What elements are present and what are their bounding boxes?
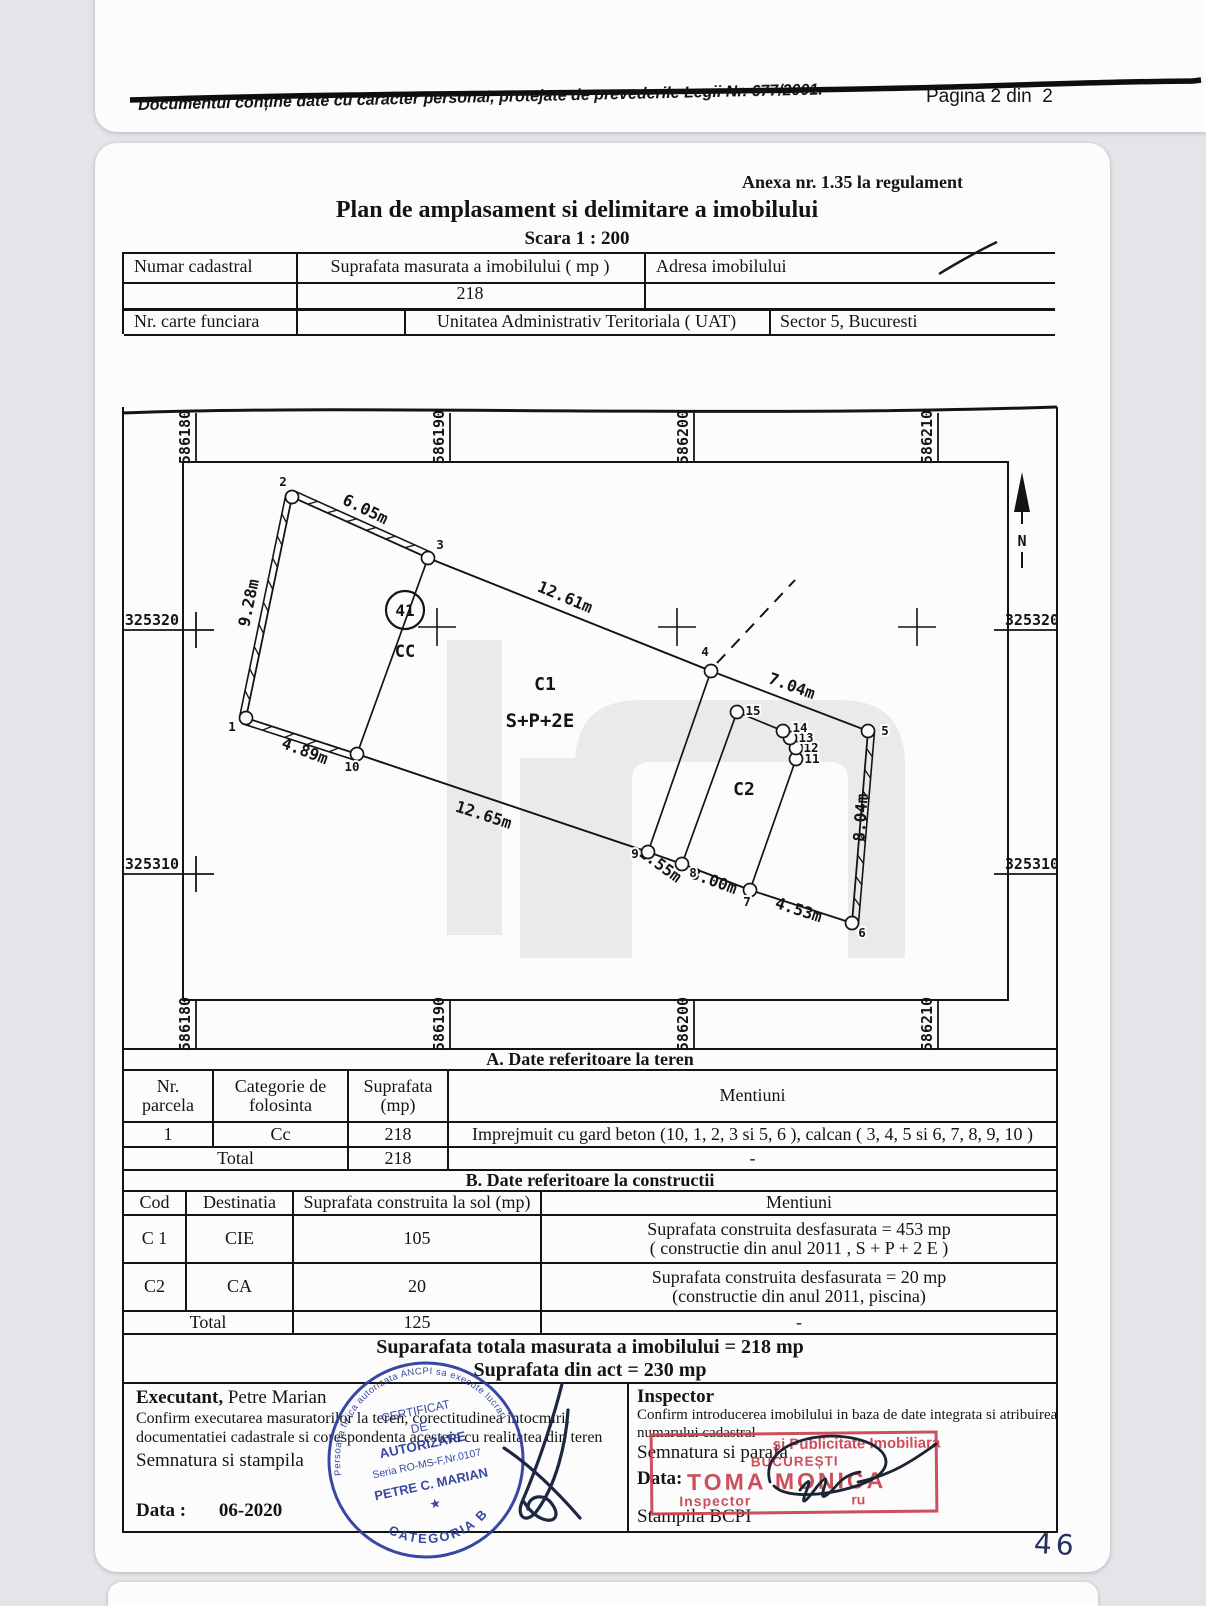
svg-text:7: 7 bbox=[743, 894, 751, 909]
svg-text:586190: 586190 bbox=[430, 410, 448, 464]
watermark bbox=[520, 758, 575, 958]
executant-date-label: Data : bbox=[136, 1500, 186, 1521]
north-arrow-icon bbox=[1014, 472, 1030, 512]
svg-text:41: 41 bbox=[395, 601, 414, 620]
svg-text:N: N bbox=[1017, 532, 1026, 550]
scanned-document-viewer: Documentul conține date cu caracter pers… bbox=[0, 0, 1206, 1590]
c2-code: C2 bbox=[124, 1264, 187, 1312]
svg-text:325310: 325310 bbox=[1005, 855, 1059, 873]
table-construction-data: B. Date referitoare la constructii Cod D… bbox=[122, 1171, 1058, 1335]
col-mentions: Mentiuni bbox=[449, 1071, 1056, 1123]
svg-text:C2: C2 bbox=[733, 779, 755, 800]
total-label: Total bbox=[124, 1148, 349, 1171]
svg-text:5: 5 bbox=[881, 723, 889, 738]
svg-text:9: 9 bbox=[631, 846, 639, 861]
col-footprint: Suprafata construita la sol (mp) bbox=[294, 1192, 542, 1216]
c1-mentions: Suprafata construita desfasurata = 453 m… bbox=[542, 1216, 1056, 1264]
parcel-area: 218 bbox=[349, 1123, 449, 1148]
c2-mentions-line2: (constructie din anul 2011, piscina) bbox=[672, 1287, 926, 1306]
b-total-footprint: 125 bbox=[294, 1312, 542, 1335]
survey-point-1 bbox=[240, 712, 253, 725]
svg-text:325310: 325310 bbox=[125, 855, 179, 873]
survey-point-4 bbox=[705, 665, 718, 678]
col-code: Cod bbox=[124, 1192, 187, 1216]
total-measured-area: Suparafata totala masurata a imobilului … bbox=[124, 1336, 1056, 1359]
survey-point-15 bbox=[731, 706, 744, 719]
svg-text:3: 3 bbox=[436, 537, 444, 552]
svg-text:4.89m: 4.89m bbox=[279, 733, 331, 768]
executant-date: Data : 06-2020 bbox=[136, 1500, 282, 1522]
svg-text:1: 1 bbox=[228, 719, 236, 734]
c1-code: C 1 bbox=[124, 1216, 187, 1264]
svg-text:586180: 586180 bbox=[176, 997, 194, 1051]
col-destination: Destinatia bbox=[187, 1192, 294, 1216]
parcel-mentions: Imprejmuit cu gard beton (10, 1, 2, 3 si… bbox=[449, 1123, 1056, 1148]
svg-text:4.53m: 4.53m bbox=[773, 893, 825, 926]
svg-text:15: 15 bbox=[745, 703, 760, 718]
executant-label: Executant, bbox=[136, 1387, 223, 1408]
col-land-use: Categorie de folosinta bbox=[214, 1071, 349, 1123]
svg-text:6: 6 bbox=[858, 925, 866, 940]
c1-mentions-line2: ( constructie din anul 2011 , S + P + 2 … bbox=[650, 1239, 948, 1258]
total-area: 218 bbox=[349, 1148, 449, 1171]
col-parcel-number: Nr. parcela bbox=[124, 1071, 214, 1123]
c1-footprint: 105 bbox=[294, 1216, 542, 1264]
stamp-line-de: DE bbox=[410, 1419, 429, 1436]
survey-point-5 bbox=[862, 725, 875, 738]
col-area: Suprafata (mp) bbox=[349, 1071, 449, 1123]
survey-point-8 bbox=[676, 858, 689, 871]
svg-text:9.28m: 9.28m bbox=[234, 577, 263, 628]
c2-destination: CA bbox=[187, 1264, 294, 1312]
svg-text:4: 4 bbox=[701, 644, 709, 659]
svg-text:8: 8 bbox=[689, 865, 697, 880]
executant-signature bbox=[494, 1378, 594, 1538]
table-land-data: A. Date referitoare la teren Nr. parcela… bbox=[122, 1048, 1058, 1171]
survey-point-2 bbox=[286, 491, 299, 504]
c2-footprint: 20 bbox=[294, 1264, 542, 1312]
svg-text:8.04m: 8.04m bbox=[849, 793, 871, 843]
stamp-star: ★ bbox=[428, 1495, 443, 1512]
svg-text:586210: 586210 bbox=[918, 410, 936, 464]
svg-text:586190: 586190 bbox=[430, 997, 448, 1051]
svg-text:10: 10 bbox=[344, 759, 359, 774]
svg-text:586200: 586200 bbox=[674, 997, 692, 1051]
total-mentions: - bbox=[449, 1148, 1056, 1171]
svg-text:586180: 586180 bbox=[176, 410, 194, 464]
svg-text:2: 2 bbox=[279, 474, 287, 489]
inspector-signature bbox=[742, 1420, 947, 1530]
svg-text:586200: 586200 bbox=[674, 410, 692, 464]
svg-text:CC: CC bbox=[395, 642, 415, 662]
red-stamp-role: Inspector bbox=[679, 1492, 751, 1509]
totals-block: Suparafata totala masurata a imobilului … bbox=[122, 1335, 1058, 1382]
inspector-heading: Inspector bbox=[637, 1386, 714, 1408]
svg-text:C1: C1 bbox=[534, 674, 556, 695]
executant-signature-label: Semnatura si stampila bbox=[136, 1450, 304, 1472]
handwritten-page-number: 46 bbox=[1033, 1527, 1078, 1562]
survey-point-6 bbox=[846, 917, 859, 930]
svg-text:14: 14 bbox=[792, 720, 807, 735]
svg-text:325320: 325320 bbox=[1005, 611, 1059, 629]
executant-heading: Executant, Petre Marian bbox=[136, 1387, 326, 1409]
svg-text:S+P+2E: S+P+2E bbox=[506, 710, 575, 732]
table-b-title: B. Date referitoare la constructii bbox=[124, 1171, 1056, 1192]
parcel-land-use: Cc bbox=[214, 1123, 349, 1148]
col-b-mentions: Mentiuni bbox=[542, 1192, 1056, 1216]
svg-text:12.61m: 12.61m bbox=[535, 577, 596, 617]
svg-text:325320: 325320 bbox=[125, 611, 179, 629]
survey-point-3 bbox=[422, 552, 435, 565]
survey-point-14 bbox=[777, 725, 790, 738]
c2-mentions: Suprafata construita desfasurata = 20 mp… bbox=[542, 1264, 1056, 1312]
table-a-title: A. Date referitoare la teren bbox=[124, 1050, 1056, 1071]
svg-text:586210: 586210 bbox=[918, 997, 936, 1051]
c1-destination: CIE bbox=[187, 1216, 294, 1264]
b-total-mentions: - bbox=[542, 1312, 1056, 1335]
footer-divider bbox=[627, 1384, 629, 1531]
survey-point-9 bbox=[642, 846, 655, 859]
c2-mentions-line1: Suprafata construita desfasurata = 20 mp bbox=[652, 1268, 947, 1287]
b-total-label: Total bbox=[124, 1312, 294, 1335]
c1-mentions-line1: Suprafata construita desfasurata = 453 m… bbox=[647, 1220, 951, 1239]
parcel-number: 1 bbox=[124, 1123, 214, 1148]
executant-date-value: 06-2020 bbox=[219, 1500, 282, 1521]
svg-text:7.04m: 7.04m bbox=[766, 669, 818, 703]
